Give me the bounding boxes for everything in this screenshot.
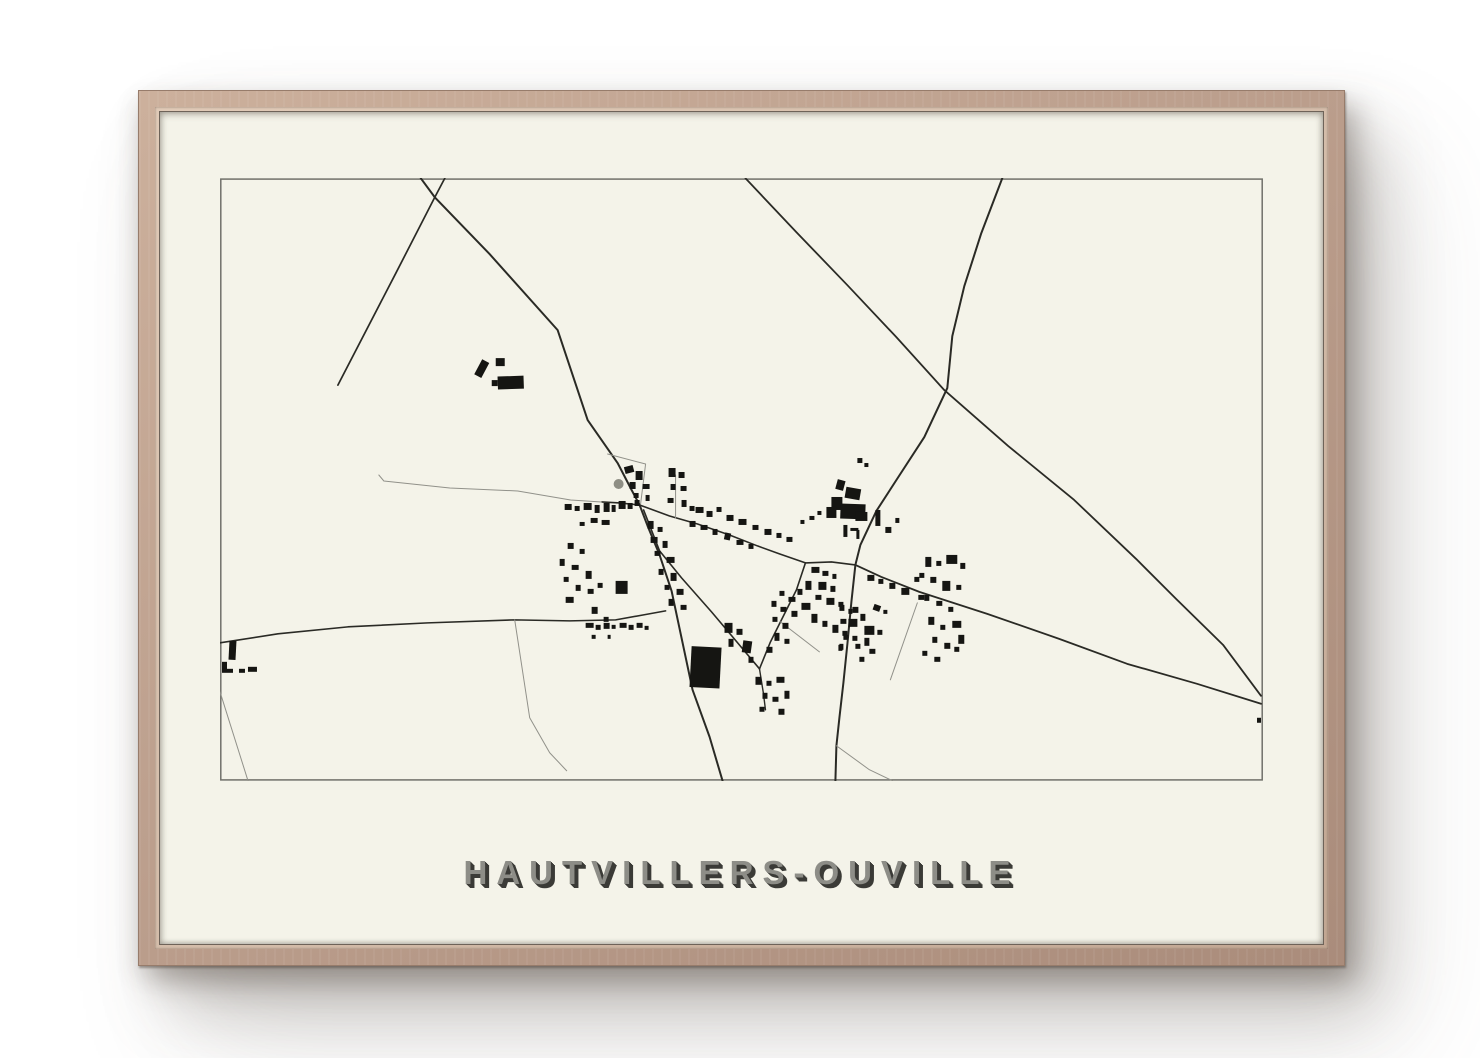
wood-frame: HAUTVILLERS-OUVILLE <box>138 90 1345 966</box>
buildings-layer <box>222 358 1261 723</box>
wall-background: HAUTVILLERS-OUVILLE <box>0 0 1480 1058</box>
roads-layer <box>220 178 1261 780</box>
gray-landmark-dot <box>614 479 624 489</box>
map-border <box>221 179 1262 780</box>
poster-paper: HAUTVILLERS-OUVILLE <box>159 111 1324 945</box>
map-area <box>220 178 1263 781</box>
poster-title: HAUTVILLERS-OUVILLE <box>160 854 1323 892</box>
village-map <box>220 178 1263 781</box>
frame-inner-lip: HAUTVILLERS-OUVILLE <box>155 107 1328 949</box>
